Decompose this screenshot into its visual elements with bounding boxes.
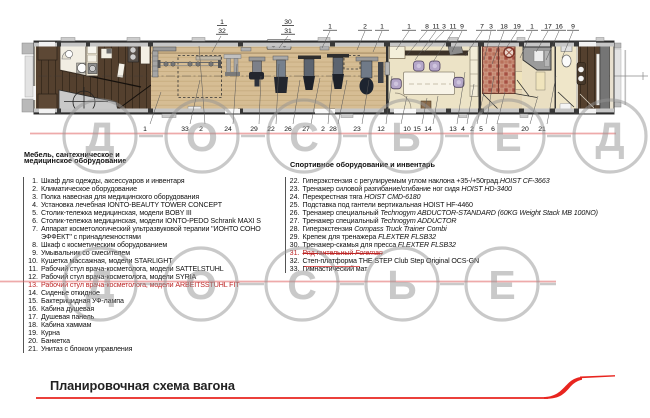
svg-text:О: О	[186, 114, 218, 160]
svg-text:С: С	[289, 114, 319, 160]
svg-text:Д: Д	[595, 114, 624, 160]
svg-text:Д: Д	[85, 114, 114, 160]
svg-text:Е: Е	[488, 262, 515, 308]
svg-text:Д: Д	[85, 262, 114, 308]
svg-text:Ь: Ь	[387, 262, 416, 308]
svg-text:Ь: Ь	[391, 114, 420, 160]
svg-text:Е: Е	[494, 114, 521, 160]
svg-text:О: О	[185, 262, 217, 308]
svg-text:С: С	[287, 262, 317, 308]
